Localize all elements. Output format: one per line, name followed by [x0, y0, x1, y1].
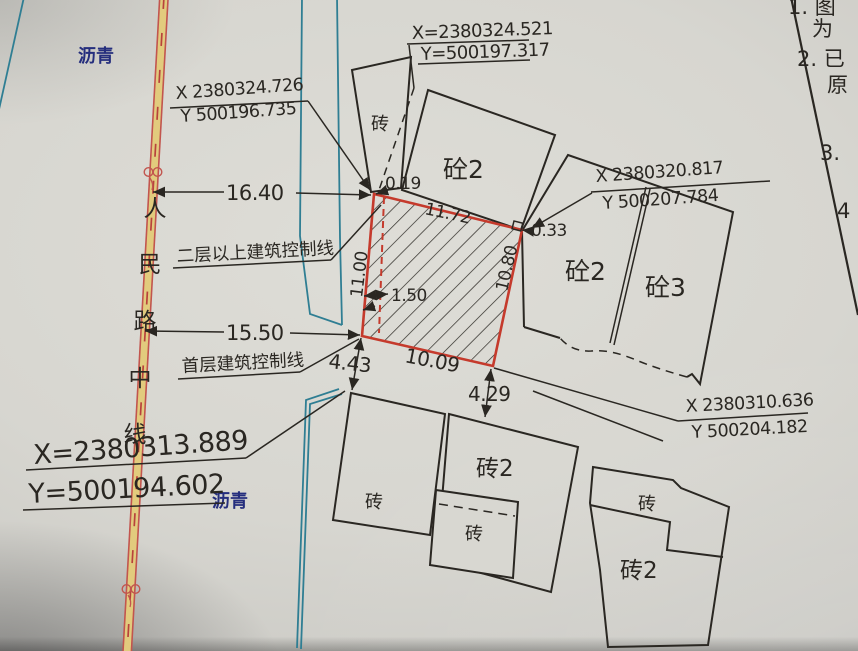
- margin-note-3: 3.: [820, 141, 840, 165]
- dim-15.50-line-left: [145, 331, 224, 332]
- dim-0.33: 0.33: [531, 221, 567, 241]
- coord-se-x: X 2380310.636: [685, 390, 814, 417]
- building-outline-south-east: [590, 467, 729, 647]
- building-label-south-east-upper: 砖: [638, 494, 656, 515]
- margin-note-1b: 为: [812, 17, 833, 41]
- curb-line-east: [337, 0, 342, 325]
- dim-0.19: 0.19: [385, 174, 421, 194]
- site-plan-photo: { "colors": { "paper": "#d8d7d1", "ink":…: [0, 0, 858, 651]
- margin-note-4: 4: [837, 199, 850, 223]
- building-label-east-a: 砼2: [565, 257, 606, 286]
- curb-lines: [0, 0, 342, 649]
- dim-15.50-line-right: [290, 333, 360, 335]
- dim-4.43: 4.43: [327, 349, 372, 377]
- label-upper-control-line: 二层以上建筑控制线: [176, 239, 334, 267]
- dim-15.50: 15.50: [226, 321, 284, 345]
- corner-marker-ne: [512, 221, 523, 231]
- building-label-top-narrow: 砖: [371, 114, 389, 135]
- road-name-char-1: 人: [144, 196, 167, 222]
- building-label-east-b: 砼3: [645, 273, 686, 302]
- coord-se-y: Y 500204.182: [690, 417, 808, 443]
- dim-0.33-arrow: [522, 230, 531, 231]
- dim-16.40-line-right: [296, 193, 371, 195]
- margin-note-2: 2. 已: [797, 47, 845, 71]
- building-east-block-bottom-left: [524, 327, 560, 338]
- curb-line-west: [300, 0, 342, 325]
- site-plan-drawing: 人 民 路 中 线 沥青 沥青 砖 砼2 砼2 砼3 砖 砖2 砖: [0, 0, 858, 651]
- building-label-top-large: 砼2: [443, 155, 484, 184]
- margin-notes: 1. 图 为 2. 已 原 3. 4: [788, 0, 850, 223]
- building-south-east-divider: [590, 505, 723, 557]
- margin-note-2b: 原: [827, 73, 848, 97]
- curb-line-south-b: [301, 394, 342, 649]
- coord-se-leader: [494, 368, 678, 421]
- coord-sw-leader: [246, 391, 345, 458]
- dim-4.29: 4.29: [468, 382, 511, 406]
- building-label-south-center-inner: 砖: [465, 524, 483, 545]
- building-outline-south-west: [333, 393, 445, 535]
- curb-line-topleft: [0, 0, 24, 114]
- building-label-south-east-lower: 砖2: [620, 558, 658, 584]
- building-east-block-dashed-bottom: [560, 338, 687, 377]
- road-name-char-2: 民: [139, 252, 162, 278]
- building-label-south-center: 砖2: [476, 456, 514, 482]
- dim-16.40: 16.40: [226, 181, 284, 205]
- building-label-south-west: 砖: [365, 492, 383, 513]
- surface-label-asphalt-top: 沥青: [78, 46, 114, 67]
- buildings: 砖 砼2 砼2 砼3 砖 砖2 砖 砖 砖2: [333, 57, 733, 647]
- dim-1.50: 1.50: [391, 286, 427, 306]
- coord-ne-x: X 2380320.817: [595, 158, 724, 187]
- road-name-char-4: 中: [129, 366, 152, 392]
